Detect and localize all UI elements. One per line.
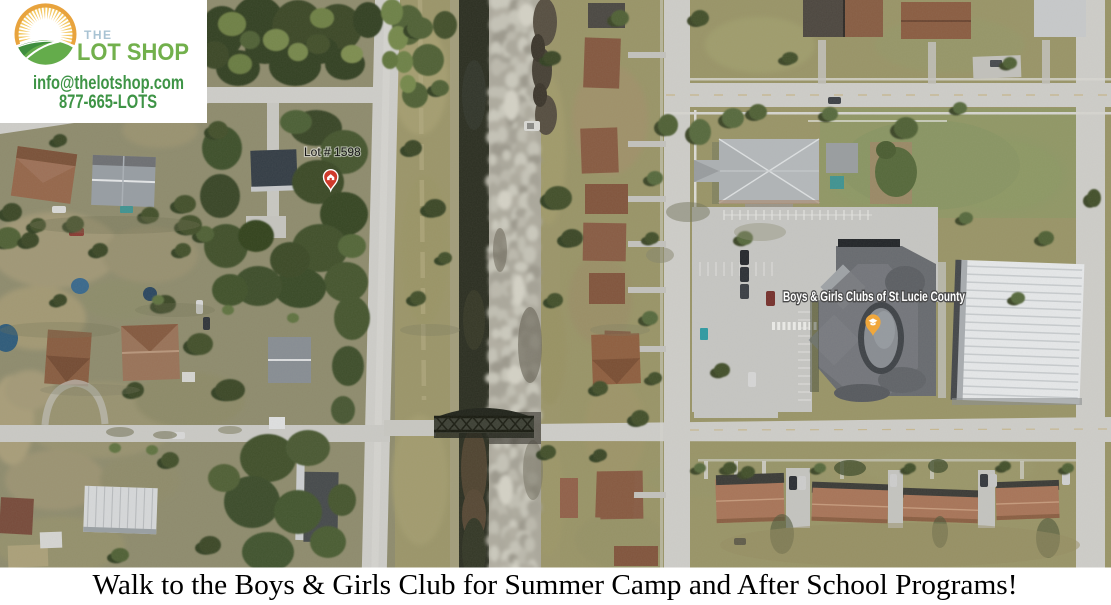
svg-text:877-665-LOTS: 877-665-LOTS bbox=[59, 92, 157, 113]
svg-text:LOT SHOP: LOT SHOP bbox=[77, 39, 189, 66]
svg-text:Walk to the Boys & Girls Club: Walk to the Boys & Girls Club for Summer… bbox=[93, 569, 1018, 601]
svg-text:Lot # 1598: Lot # 1598 bbox=[304, 145, 361, 159]
svg-text:info@thelotshop.com: info@thelotshop.com bbox=[33, 73, 184, 94]
svg-text:Boys & Girls Clubs of St Lucie: Boys & Girls Clubs of St Lucie County bbox=[783, 289, 965, 304]
